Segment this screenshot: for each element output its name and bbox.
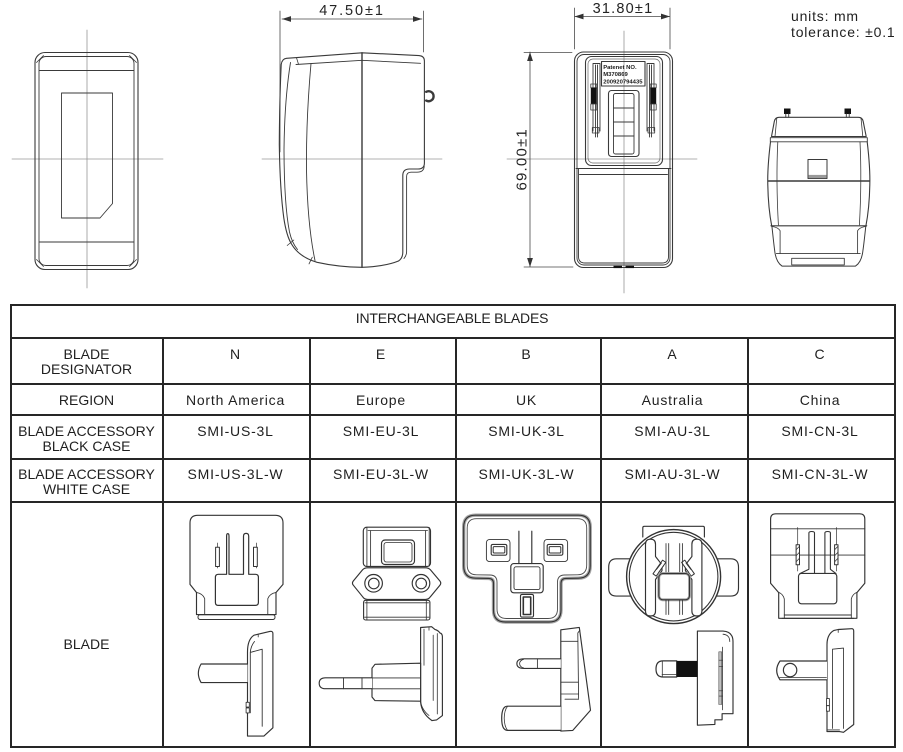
svg-text:Patenet NO.: Patenet NO. <box>603 65 637 71</box>
svg-text:200920794435: 200920794435 <box>603 80 643 86</box>
svg-text:M370869: M370869 <box>603 72 628 78</box>
svg-text:31.80±1: 31.80±1 <box>593 1 654 17</box>
svg-text:47.50±1: 47.50±1 <box>319 3 385 19</box>
svg-text:69.00±1: 69.00±1 <box>514 128 531 191</box>
